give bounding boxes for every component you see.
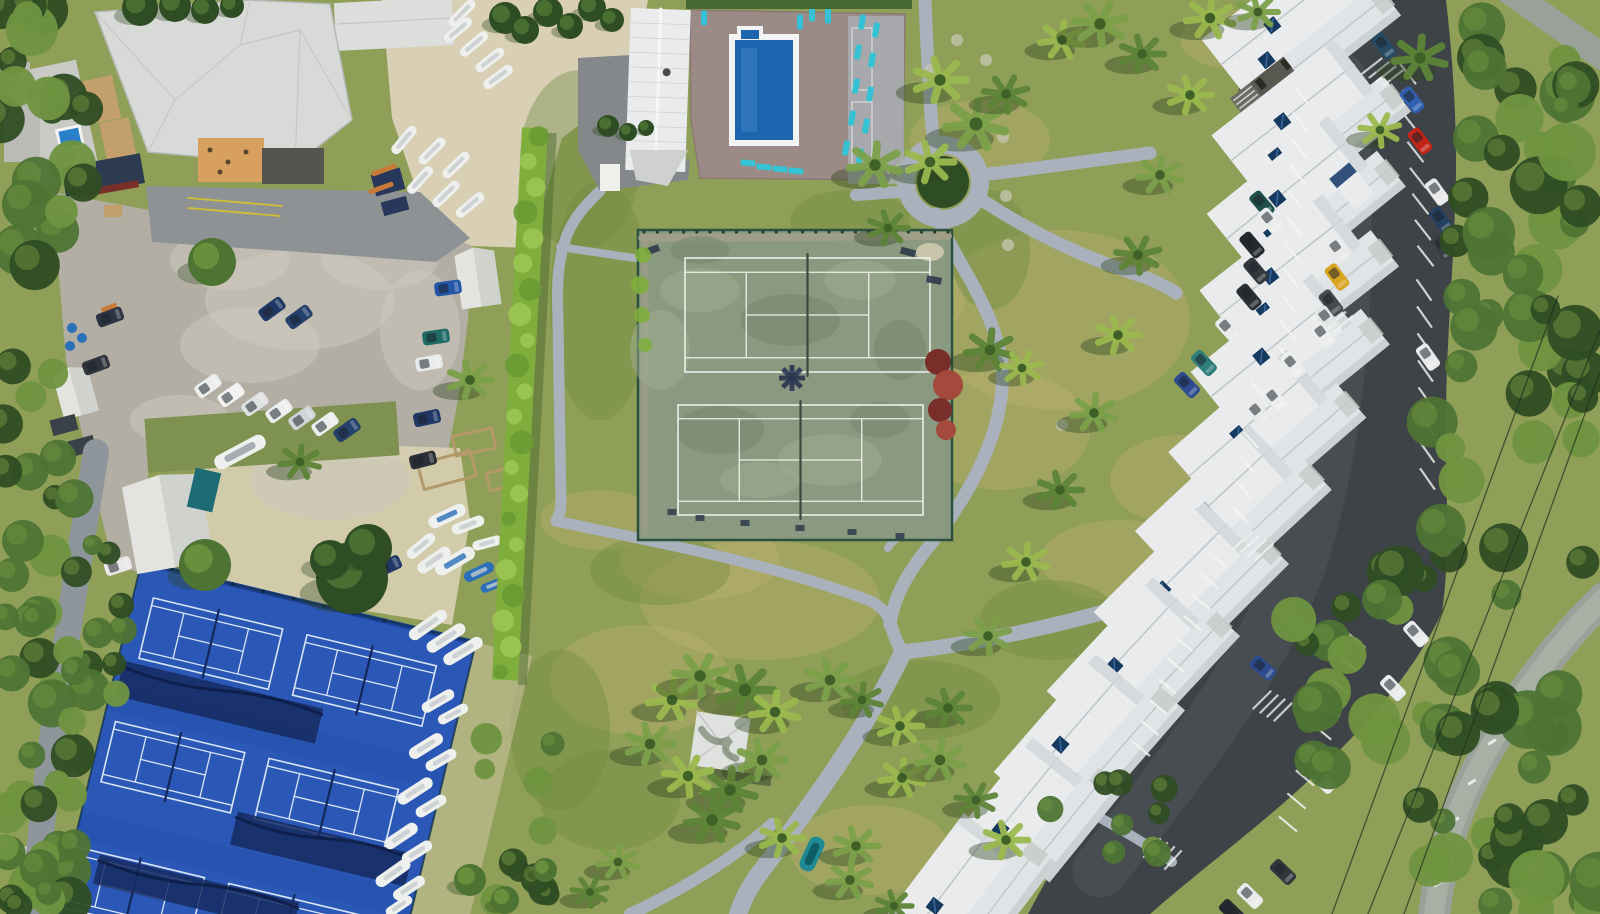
forest-tree-light	[1443, 462, 1466, 485]
forest-tree-light	[47, 773, 60, 786]
shaded-patio	[262, 148, 324, 184]
forest-tree-light	[72, 95, 89, 112]
forest-tree-light	[1440, 716, 1462, 738]
tree-canopy-highlight	[602, 10, 615, 23]
forest-tree-light	[1527, 804, 1550, 827]
fence-post	[814, 230, 817, 233]
fence-post	[920, 230, 923, 233]
forest-tree-light	[61, 833, 77, 849]
forest-tree-light	[1366, 720, 1391, 745]
forest-tree-light	[1458, 120, 1481, 143]
pool-building	[625, 8, 691, 172]
forest-tree-light	[531, 819, 545, 833]
court-wear	[720, 462, 800, 498]
forest-tree-light	[25, 608, 39, 622]
forest-tree-light	[1276, 601, 1299, 624]
palm-crown	[586, 888, 594, 896]
forest-tree-light	[1448, 353, 1464, 369]
fence-post	[642, 230, 645, 233]
palm-crown	[983, 631, 993, 641]
green-tennis-courts	[630, 230, 963, 540]
fence-post	[788, 230, 791, 233]
tree-canopy-highlight	[535, 860, 548, 873]
palm-crown	[1133, 250, 1143, 260]
tree-canopy-highlight	[599, 117, 611, 129]
palm-crown	[1001, 835, 1011, 845]
forest-tree-light	[476, 761, 486, 771]
forest-tree-light	[19, 384, 35, 400]
stepping-stone	[1002, 239, 1014, 251]
forest-tree-light	[1452, 182, 1472, 202]
forest-tree-light	[15, 4, 30, 19]
forest-tree-light	[64, 660, 78, 674]
forest-tree-light	[56, 639, 71, 654]
forest-tree-light	[1297, 687, 1322, 712]
forest-tree-light	[24, 853, 44, 873]
palm-crown	[645, 739, 656, 750]
fence-post	[827, 230, 830, 233]
blue-barrel	[77, 333, 87, 343]
forest-tree-light	[1104, 843, 1116, 855]
forest-tree-light	[1482, 891, 1499, 908]
forest-tree-light	[1455, 308, 1479, 332]
forest-tree-light	[1468, 212, 1494, 238]
forest-tree-light	[106, 683, 119, 696]
forest-tree-light	[1570, 549, 1587, 566]
forest-tree-light	[1497, 806, 1513, 822]
court-post	[741, 520, 750, 526]
forest-tree-light	[1447, 282, 1465, 300]
fence-vine	[638, 338, 652, 352]
forest-tree-light	[502, 851, 516, 865]
bougainvillea-bush	[933, 370, 963, 400]
court-post	[796, 525, 805, 531]
court-wear	[660, 268, 740, 312]
forest-tree-light	[1533, 298, 1548, 313]
palm-crown	[845, 875, 855, 885]
forest-tree-light	[1500, 99, 1524, 123]
forest-tree-light	[64, 559, 79, 574]
forest-tree-light	[1312, 750, 1334, 772]
forest-tree-light	[1443, 228, 1459, 244]
forest-tree-light	[1484, 528, 1509, 553]
tree-canopy-highlight	[494, 889, 509, 904]
palm-crown	[935, 755, 946, 766]
forest-tree-light	[1540, 675, 1564, 699]
forest-tree-light	[1521, 754, 1537, 770]
walkway	[856, 192, 898, 195]
forest-tree-light	[61, 710, 75, 724]
forest-tree-light	[1150, 805, 1161, 816]
forest-tree-light	[1146, 842, 1160, 856]
tree-canopy-highlight	[193, 243, 219, 269]
palm-crown	[869, 159, 880, 170]
lounge-chair	[797, 15, 803, 30]
deck-furniture	[226, 160, 231, 165]
palm-crown	[884, 224, 893, 233]
forest-tree-light	[48, 198, 64, 214]
forest-tree-light	[1334, 595, 1349, 610]
forest-tree-light	[38, 882, 51, 895]
fence-vine	[634, 307, 650, 323]
forest-tree-light	[1109, 772, 1122, 785]
deck-furniture	[208, 148, 213, 153]
palm-crown	[724, 784, 735, 795]
palm-crown	[1001, 89, 1011, 99]
forest-tree-light	[1487, 138, 1505, 156]
forest-tree-light	[1561, 787, 1577, 803]
fence-post	[775, 230, 778, 233]
forest-tree-light	[531, 769, 541, 779]
palm-crown	[777, 833, 787, 843]
forest-tree-light	[1515, 162, 1544, 191]
forest-tree-light	[24, 789, 42, 807]
forest-tree-light	[1379, 551, 1404, 576]
forest-tree-light	[1439, 436, 1454, 451]
forest-tree-light	[85, 537, 95, 547]
fence-post	[656, 230, 659, 233]
tree-canopy-highlight	[184, 544, 213, 573]
palm-crown	[1155, 170, 1165, 180]
forest-tree-light	[1552, 48, 1568, 64]
forest-tree-light	[1428, 837, 1453, 862]
forest-tree-light	[31, 81, 53, 103]
fence-post	[933, 230, 936, 233]
court-wear	[850, 402, 910, 438]
forest-tree-light	[1366, 584, 1386, 604]
palm-crown	[925, 157, 936, 168]
aerial-photo	[0, 0, 1600, 914]
forest-tree-light	[0, 70, 20, 90]
deck-furniture	[244, 150, 249, 155]
court-wear	[824, 260, 896, 300]
palm-crown	[1185, 90, 1195, 100]
forest-tree-light	[41, 361, 56, 376]
fence-post	[841, 230, 844, 233]
deck-top-hedge	[686, 0, 912, 9]
bougainvillea-bush	[928, 398, 952, 422]
pool-light-reflection	[741, 48, 757, 132]
forest-tree-light	[21, 744, 34, 757]
tree-canopy-highlight	[314, 544, 336, 566]
palm-crown	[296, 458, 305, 467]
tree-canopy-highlight	[621, 125, 631, 135]
outbuilding-roof	[334, 0, 454, 51]
deck-furniture	[218, 170, 223, 175]
car-windshield	[426, 333, 437, 343]
forest-tree-light	[1475, 821, 1493, 839]
lounge-chair	[701, 11, 707, 26]
palm-crown	[739, 684, 751, 696]
dark-grass-patch	[550, 180, 650, 420]
court-post	[848, 529, 857, 535]
car-windshield	[438, 284, 449, 294]
palm-crown	[614, 858, 623, 867]
forest-tree-light	[1412, 402, 1437, 427]
palm-crown	[1021, 557, 1031, 567]
tree-canopy-highlight	[492, 5, 510, 23]
forest-tree-light	[1113, 816, 1124, 827]
palm-crown	[757, 755, 768, 766]
palm-crown	[858, 696, 867, 705]
stepping-stone	[980, 54, 992, 66]
forest-tree-light	[7, 895, 21, 909]
palm-crown	[1089, 408, 1099, 418]
palm-crown	[1137, 49, 1147, 59]
palm-crown	[934, 74, 945, 85]
fence-post	[946, 230, 949, 233]
forest-tree-light	[1507, 258, 1527, 278]
small-shed	[600, 164, 620, 191]
forest-tree-light	[53, 145, 77, 169]
bougainvillea-bush	[936, 420, 956, 440]
palm-crown	[943, 703, 953, 713]
tree-canopy-highlight	[349, 529, 375, 555]
forest-tree-light	[59, 483, 78, 502]
palm-crown	[985, 345, 996, 356]
forest-tree-light	[68, 167, 87, 186]
wooden-crate	[104, 205, 122, 217]
tree-canopy-highlight	[640, 122, 649, 131]
court-wear	[740, 294, 840, 346]
forest-tree-light	[43, 443, 61, 461]
palm-crown	[694, 670, 705, 681]
canopy-tent	[454, 245, 502, 310]
forest-tree-light	[1438, 654, 1461, 677]
palm-crown	[1254, 8, 1263, 17]
court-post	[696, 515, 705, 521]
palm-crown	[1205, 13, 1216, 24]
tree-canopy-highlight	[560, 16, 574, 30]
fence-post	[669, 230, 672, 233]
court-wear	[676, 406, 764, 454]
fence-post	[854, 230, 857, 233]
car-windshield	[419, 359, 430, 370]
forest-tree-light	[1544, 129, 1573, 158]
palm-crown	[895, 721, 905, 731]
forest-tree-light	[1564, 189, 1585, 210]
palm-crown	[465, 375, 475, 385]
fence-post	[708, 230, 711, 233]
tree-canopy-highlight	[457, 867, 475, 885]
blue-barrel	[65, 341, 75, 351]
fence-vine	[635, 247, 651, 263]
fence-post	[801, 230, 804, 233]
palm-crown	[1113, 330, 1123, 340]
tree-canopy-highlight	[514, 19, 529, 34]
palm-crown	[972, 796, 981, 805]
forest-tree-light	[1, 50, 15, 64]
orange-deck	[198, 138, 264, 182]
forest-tree-light	[1421, 509, 1446, 534]
forest-tree-light	[33, 684, 57, 708]
pool-steps-water	[741, 30, 759, 39]
forest-tree-light	[1517, 425, 1539, 447]
palm-crown	[1094, 18, 1105, 29]
fence-post	[761, 230, 764, 233]
forest-tree-light	[15, 245, 40, 270]
forest-tree-light	[543, 734, 555, 746]
forest-tree-light	[86, 621, 101, 636]
forest-tree-light	[1559, 72, 1577, 90]
court-wear	[670, 236, 730, 264]
forest-tree-light	[1514, 856, 1542, 884]
stepping-stone	[951, 34, 963, 46]
lounge-chair	[825, 9, 831, 24]
court-shade-structure	[790, 365, 795, 391]
palm-crown	[969, 117, 982, 130]
forest-tree-light	[1040, 798, 1053, 811]
forest-tree-light	[55, 738, 77, 760]
forest-tree-light	[23, 642, 43, 662]
palm-crown	[706, 814, 717, 825]
palm-crown	[825, 675, 836, 686]
fence-post	[735, 230, 738, 233]
forest-tree-light	[1331, 639, 1350, 658]
stepping-stone	[1000, 190, 1012, 202]
palm-crown	[851, 841, 861, 851]
fence-post	[722, 230, 725, 233]
palm-crown	[683, 771, 694, 782]
forest-tree-light	[1554, 98, 1568, 112]
forest-tree-light	[111, 595, 124, 608]
forest-tree-light	[1153, 778, 1167, 792]
palm-crown	[1018, 364, 1027, 373]
palm-crown	[1414, 52, 1425, 63]
blue-barrel	[67, 323, 77, 333]
forest-tree-light	[6, 524, 27, 545]
palm-crown	[890, 902, 898, 910]
tree-canopy-highlight	[536, 0, 553, 17]
fence-vine	[631, 276, 649, 294]
forest-tree-light	[105, 654, 117, 666]
fence-post	[682, 230, 685, 233]
fence-post	[695, 230, 698, 233]
forest-tree-light	[1475, 691, 1499, 715]
aerial-photo-stage	[0, 0, 1600, 914]
court-post	[668, 509, 677, 515]
palm-crown	[1055, 485, 1065, 495]
forest-tree-light	[1467, 50, 1489, 72]
court-post	[896, 533, 905, 539]
fence-post	[748, 230, 751, 233]
forest-tree-light	[474, 726, 490, 742]
palm-crown	[1376, 126, 1385, 135]
court-wear	[874, 320, 926, 380]
forest-tree-light	[7, 185, 32, 210]
palm-crown	[770, 707, 781, 718]
forest-tree-light	[112, 619, 126, 633]
forest-tree-light	[1096, 774, 1108, 786]
forest-tree-light	[1463, 7, 1486, 30]
